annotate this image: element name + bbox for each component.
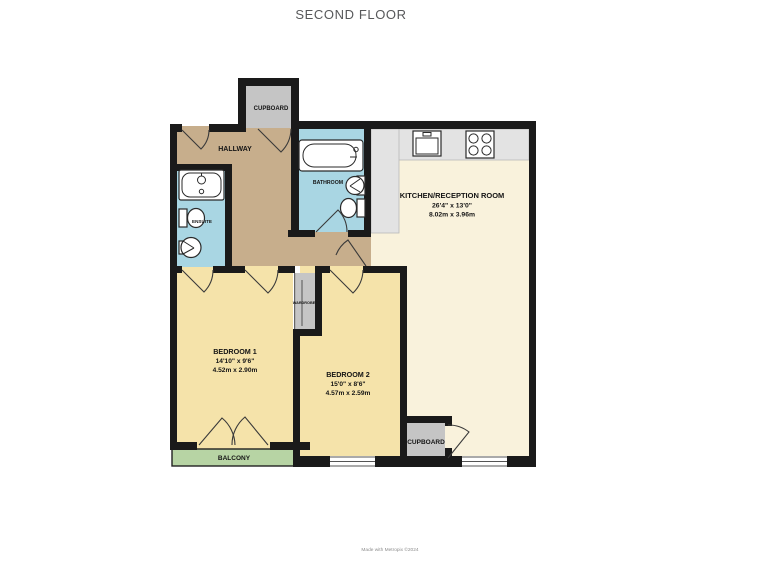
balcony-label: BALCONY bbox=[218, 455, 251, 462]
kitchen-sink-unit bbox=[413, 131, 441, 156]
wall-segment bbox=[238, 78, 299, 86]
bedroom2-dims-imperial: 15'0" x 8'6" bbox=[330, 381, 365, 388]
ensuite-toilet bbox=[179, 209, 205, 228]
wall-segment bbox=[529, 121, 536, 467]
credit-text: Made with Metropix ©2024 bbox=[361, 546, 418, 553]
bedroom1-label: BEDROOM 1 14'10" x 9'6" 4.52m x 2.90m bbox=[213, 347, 258, 374]
bathtub-outline bbox=[299, 140, 363, 171]
sink-bowl bbox=[181, 238, 201, 258]
bedroom2-dims-metric: 4.57m x 2.59m bbox=[326, 390, 371, 397]
floorplan-page: SECOND FLOOR bbox=[0, 0, 768, 576]
bathtub bbox=[299, 140, 363, 171]
floor-title: SECOND FLOOR bbox=[295, 7, 406, 22]
kitchen-dims-imperial: 26'4" x 13'0" bbox=[432, 203, 472, 210]
wall-segment bbox=[278, 266, 295, 273]
wall-segment bbox=[400, 416, 452, 423]
bathroom-sink bbox=[346, 176, 365, 195]
wall-segment bbox=[209, 124, 246, 132]
cupboard-bottom-label: CUPBOARD bbox=[407, 439, 445, 446]
wall-segment bbox=[293, 329, 300, 461]
wall-segment bbox=[315, 266, 322, 336]
bedroom2-label: BEDROOM 2 15'0" x 8'6" 4.57m x 2.59m bbox=[326, 370, 371, 397]
wall-segment bbox=[293, 456, 330, 467]
wall-segment bbox=[507, 456, 536, 467]
sink-bowl bbox=[346, 177, 364, 195]
wall-segment bbox=[291, 121, 536, 129]
ensuite-shower-unit bbox=[179, 170, 224, 200]
bedroom1-dims-imperial: 14'10" x 9'6" bbox=[216, 358, 255, 365]
ensuite-sink bbox=[179, 238, 201, 258]
ensuite-label: ENSUITE bbox=[192, 219, 212, 224]
wall-segment bbox=[238, 78, 246, 132]
wall-segment bbox=[288, 230, 315, 237]
wall-segment bbox=[291, 78, 299, 237]
wardrobe-label: WARDROBE bbox=[293, 301, 316, 305]
bathroom-label: BATHROOM bbox=[313, 180, 343, 186]
kitchen-name: KITCHEN/RECEPTION ROOM bbox=[400, 191, 505, 200]
wall-segment bbox=[348, 230, 371, 237]
kitchen-dims-metric: 8.02m x 3.96m bbox=[429, 212, 475, 219]
hallway-label: HALLWAY bbox=[218, 146, 252, 153]
toilet-bowl bbox=[341, 199, 357, 218]
bedroom2-name: BEDROOM 2 bbox=[326, 370, 370, 379]
sink-unit bbox=[413, 131, 441, 156]
bedroom1-dims-metric: 4.52m x 2.90m bbox=[213, 367, 258, 374]
cupboard-top-label: CUPBOARD bbox=[254, 106, 289, 112]
toilet-bowl bbox=[188, 209, 205, 228]
floorplan-canvas: SECOND FLOOR bbox=[0, 0, 768, 576]
wall-segment bbox=[170, 124, 177, 450]
toilet-cistern bbox=[357, 199, 365, 217]
wall-segment bbox=[400, 266, 407, 458]
window-bedroom2 bbox=[330, 456, 375, 467]
window-kitchen bbox=[462, 456, 507, 467]
wall-segment bbox=[170, 442, 197, 450]
toilet-cistern bbox=[179, 209, 187, 227]
wall-segment bbox=[213, 266, 245, 273]
kitchen-counter-left bbox=[371, 129, 399, 233]
wall-segment bbox=[225, 164, 232, 272]
kitchen-hob bbox=[466, 131, 494, 158]
wall-segment bbox=[270, 442, 310, 450]
bedroom1-name: BEDROOM 1 bbox=[213, 347, 257, 356]
bathroom-toilet bbox=[341, 199, 366, 218]
wall-segment bbox=[170, 266, 182, 273]
